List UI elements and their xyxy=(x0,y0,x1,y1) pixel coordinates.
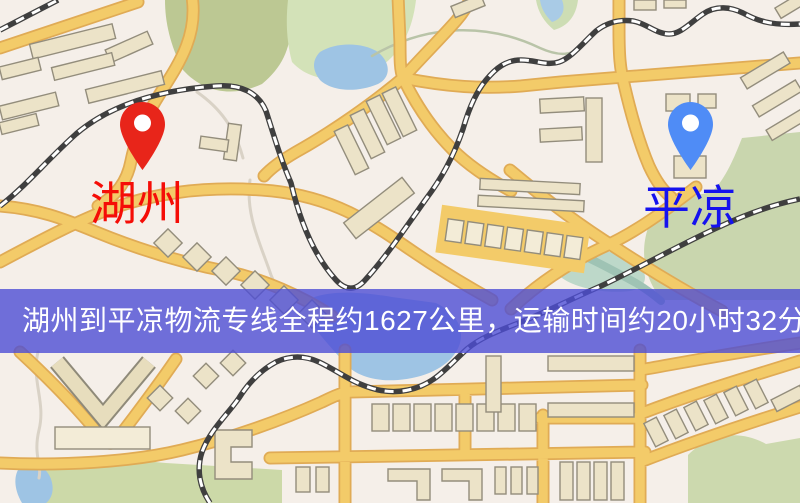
origin-city-label: 湖州 xyxy=(90,177,184,230)
route-info-text: 湖州到平凉物流专线全程约1627公里，运输时间约20小时32分钟. xyxy=(0,307,800,335)
map-canvas: 湖州 平凉 xyxy=(0,0,800,503)
route-info-banner: 湖州到平凉物流专线全程约1627公里，运输时间约20小时32分钟. xyxy=(0,289,800,353)
logistics-route-map: 湖州 平凉 湖州到平凉物流专线全程约1627公里，运输时间约20小时32分钟. xyxy=(0,0,800,503)
destination-city-label: 平凉 xyxy=(643,181,737,234)
